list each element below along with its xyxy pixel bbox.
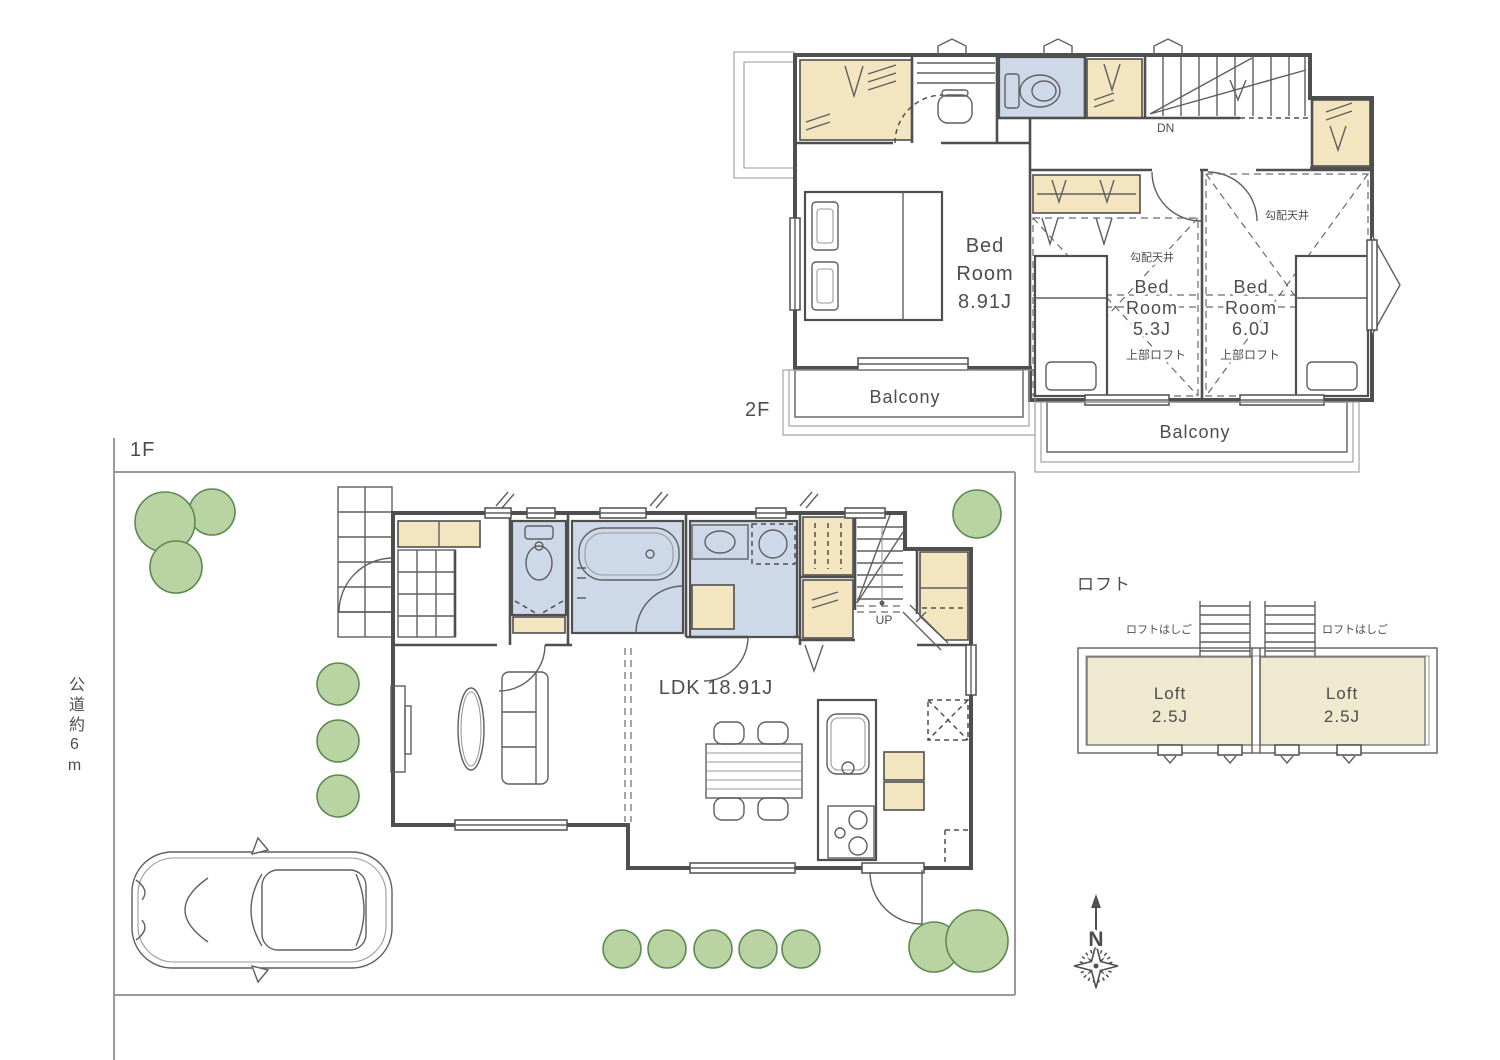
compass-north-label: N	[1088, 928, 1103, 951]
ldk-label: LDK 18.91J	[659, 677, 774, 699]
master-bedroom-label-1: Bed	[966, 235, 1005, 257]
2f-walkin-closet	[800, 60, 912, 140]
1f-bathroom	[572, 521, 683, 633]
bedroom3-upper-loft-label: 上部ロフト	[1220, 347, 1280, 362]
2f-closet-right	[1310, 98, 1372, 168]
floor-plan-canvas: DN Bed Room 8.91J	[0, 0, 1500, 1060]
master-bedroom-label-3: 8.91J	[958, 291, 1012, 313]
bedroom3-sloped-ceiling-label: 勾配天井	[1265, 208, 1309, 222]
master-bedroom-label-2: Room	[956, 263, 1013, 285]
bush-icon	[694, 930, 732, 968]
loft-plan: ロフト ロフトはしご ロフトはしご Loft 2.5J Loft 2.5J	[1077, 575, 1437, 763]
roof-outline	[734, 52, 795, 178]
2f-toilet-room	[999, 57, 1085, 118]
roof-vent-icons	[938, 39, 1182, 55]
bedroom2-sloped-ceiling-label: 勾配天井	[1130, 250, 1174, 264]
loft-ladder-label-left: ロフトはしご	[1126, 622, 1192, 636]
2f-closet-small	[1087, 59, 1142, 118]
tree-icon	[150, 541, 202, 593]
road-label: 公道約6m	[62, 676, 86, 778]
tree-icon	[953, 490, 1001, 538]
bedroom2-label-3: 5.3J	[1133, 319, 1171, 339]
bedroom3-label-3: 6.0J	[1232, 319, 1270, 339]
1f-floor-label: 1F	[130, 439, 155, 461]
bedroom3-label-2: Room	[1225, 298, 1277, 318]
loft-section-label: ロフト	[1077, 575, 1131, 594]
entrance-porch	[338, 487, 392, 637]
car	[132, 838, 392, 982]
floor-plan-page: DN Bed Room 8.91J	[0, 0, 1500, 1060]
1f-stairs-up-label: UP	[876, 613, 893, 627]
bush-icon	[739, 930, 777, 968]
kitchen-island	[818, 700, 876, 860]
bush-icon	[317, 775, 359, 817]
bush-icon	[317, 663, 359, 705]
first-floor-plan: 1F	[114, 438, 1015, 1060]
2f-balcony-left: Balcony	[783, 370, 1035, 435]
loft-right-label-2: 2.5J	[1324, 707, 1360, 726]
loft-left-label-2: 2.5J	[1152, 707, 1188, 726]
balcony-left-label: Balcony	[869, 387, 940, 407]
bedroom3-label-1: Bed	[1233, 277, 1268, 297]
bedroom2-upper-loft-label: 上部ロフト	[1126, 347, 1186, 362]
bush-icon	[648, 930, 686, 968]
2f-stairs-dn-label: DN	[1157, 121, 1174, 135]
vent-tick-icon	[496, 492, 818, 508]
second-floor-plan: DN Bed Room 8.91J	[734, 39, 1400, 472]
bush-icon	[317, 720, 359, 762]
loft-left-label-1: Loft	[1154, 684, 1186, 703]
balcony-right-label: Balcony	[1159, 422, 1230, 442]
2f-floor-label: 2F	[745, 399, 770, 421]
tree-icon	[946, 910, 1008, 972]
tree-icon	[189, 489, 235, 535]
loft-ladder-label-right: ロフトはしご	[1322, 622, 1388, 636]
bush-icon	[603, 930, 641, 968]
compass-rose: N	[1074, 894, 1118, 988]
bush-icon	[782, 930, 820, 968]
2f-balcony-right: Balcony	[1035, 402, 1359, 472]
loft-right-label-1: Loft	[1326, 684, 1358, 703]
1f-toilet-room	[512, 521, 566, 633]
bedroom2-label-2: Room	[1126, 298, 1178, 318]
bedroom2-label-1: Bed	[1134, 277, 1169, 297]
